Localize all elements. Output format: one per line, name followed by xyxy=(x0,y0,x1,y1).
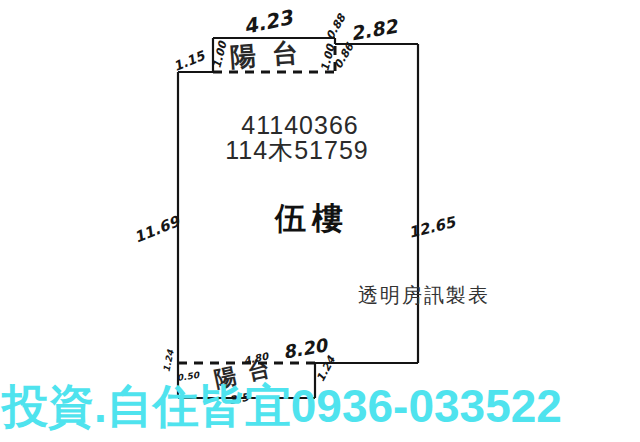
watermark-text: 投資.自住皆宜0936-033522 xyxy=(2,376,562,438)
registration-number-line1: 41140366 xyxy=(241,113,358,138)
registration-number-line2: 114木51759 xyxy=(225,138,368,163)
maker-label: 透明房訊製表 xyxy=(358,285,490,305)
top-balcony-label: 陽台 xyxy=(229,38,315,70)
floor-label: 伍樓 xyxy=(275,203,349,234)
floorplan-page: 4.23 2.82 1.15 1.00 1.00 0.88 0.86 11.69… xyxy=(0,0,640,442)
